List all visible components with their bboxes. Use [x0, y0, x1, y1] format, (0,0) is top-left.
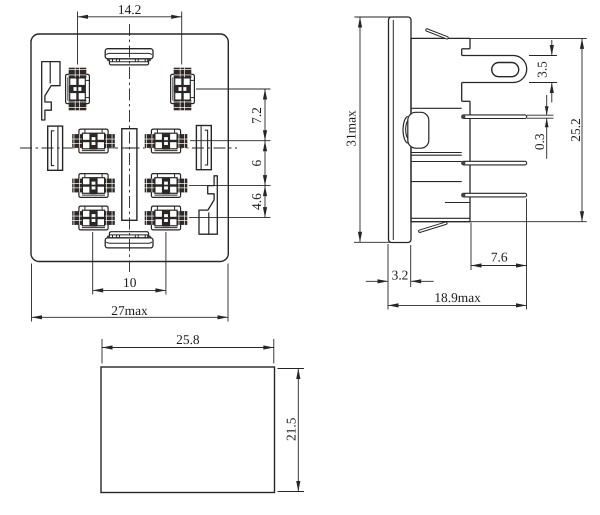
svg-text:7.2: 7.2	[249, 107, 264, 124]
svg-text:25.8: 25.8	[176, 332, 200, 347]
svg-text:31max: 31max	[344, 110, 359, 147]
svg-text:14.2: 14.2	[118, 2, 141, 17]
svg-text:27max: 27max	[111, 303, 148, 318]
svg-text:21.5: 21.5	[284, 417, 299, 441]
svg-text:4.6: 4.6	[249, 193, 264, 210]
svg-text:3.5: 3.5	[535, 61, 550, 78]
svg-text:3.2: 3.2	[392, 267, 409, 282]
svg-text:18.9max: 18.9max	[434, 290, 481, 305]
svg-text:0.3: 0.3	[532, 133, 547, 150]
svg-text:10: 10	[123, 275, 137, 290]
svg-text:7.6: 7.6	[491, 250, 508, 265]
svg-text:6: 6	[249, 160, 264, 167]
svg-text:25.2: 25.2	[568, 118, 583, 141]
